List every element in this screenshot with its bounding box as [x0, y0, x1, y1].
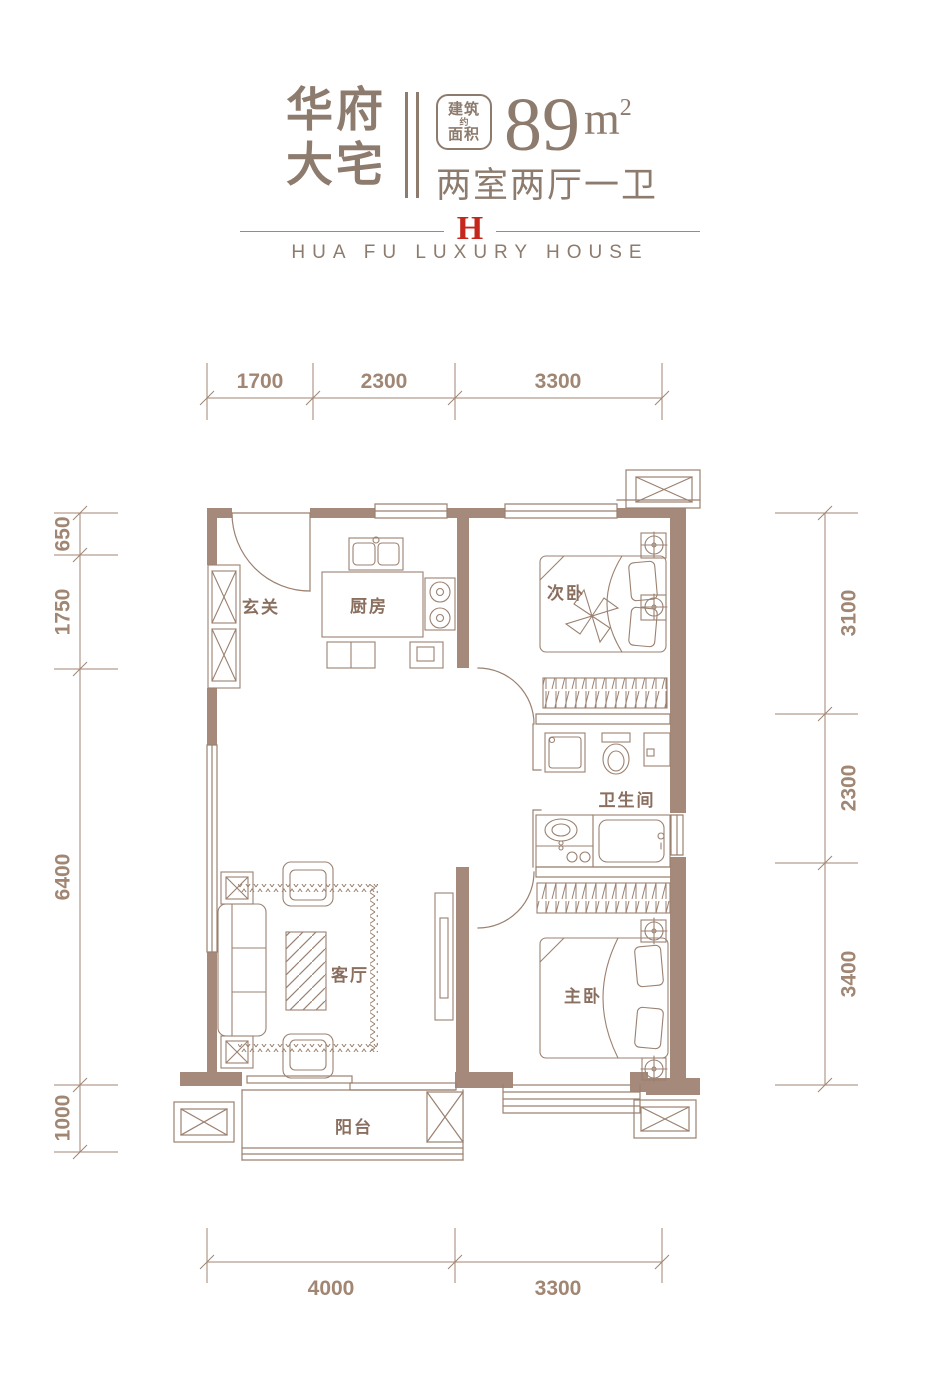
dim-left-6400: 6400 [52, 854, 75, 901]
dim-top-2300: 2300 [361, 370, 408, 393]
dim-left-1000: 1000 [52, 1095, 75, 1142]
dim-bottom-3300: 3300 [535, 1277, 582, 1300]
room-label-bathroom: 卫生间 [599, 790, 656, 810]
floorplan-drawing: 玄关 厨房 次卧 卫生间 客厅 主卧 阳台 [0, 0, 933, 1400]
dim-right-2300: 2300 [838, 765, 861, 812]
room-label-living-room: 客厅 [330, 965, 369, 985]
room-label-master-bedroom: 主卧 [564, 986, 602, 1006]
room-label-entry: 玄关 [242, 597, 280, 617]
dim-top-1700: 1700 [237, 370, 284, 393]
dim-top-3300: 3300 [535, 370, 582, 393]
dim-left-1750: 1750 [52, 589, 75, 636]
floorplan-page: 华府 大宅 建筑 约 面积 89 m 2 两室两厅一卫 H HUA FU LUX… [0, 0, 933, 1400]
dimension-lines [54, 363, 858, 1283]
room-label-kitchen: 厨房 [350, 596, 388, 616]
dim-left-650: 650 [52, 516, 75, 551]
room-label-balcony: 阳台 [335, 1117, 373, 1137]
dim-bottom-4000: 4000 [308, 1277, 355, 1300]
dim-right-3400: 3400 [838, 951, 861, 998]
dim-right-3100: 3100 [838, 590, 861, 637]
room-label-second-bedroom: 次卧 [547, 583, 585, 603]
